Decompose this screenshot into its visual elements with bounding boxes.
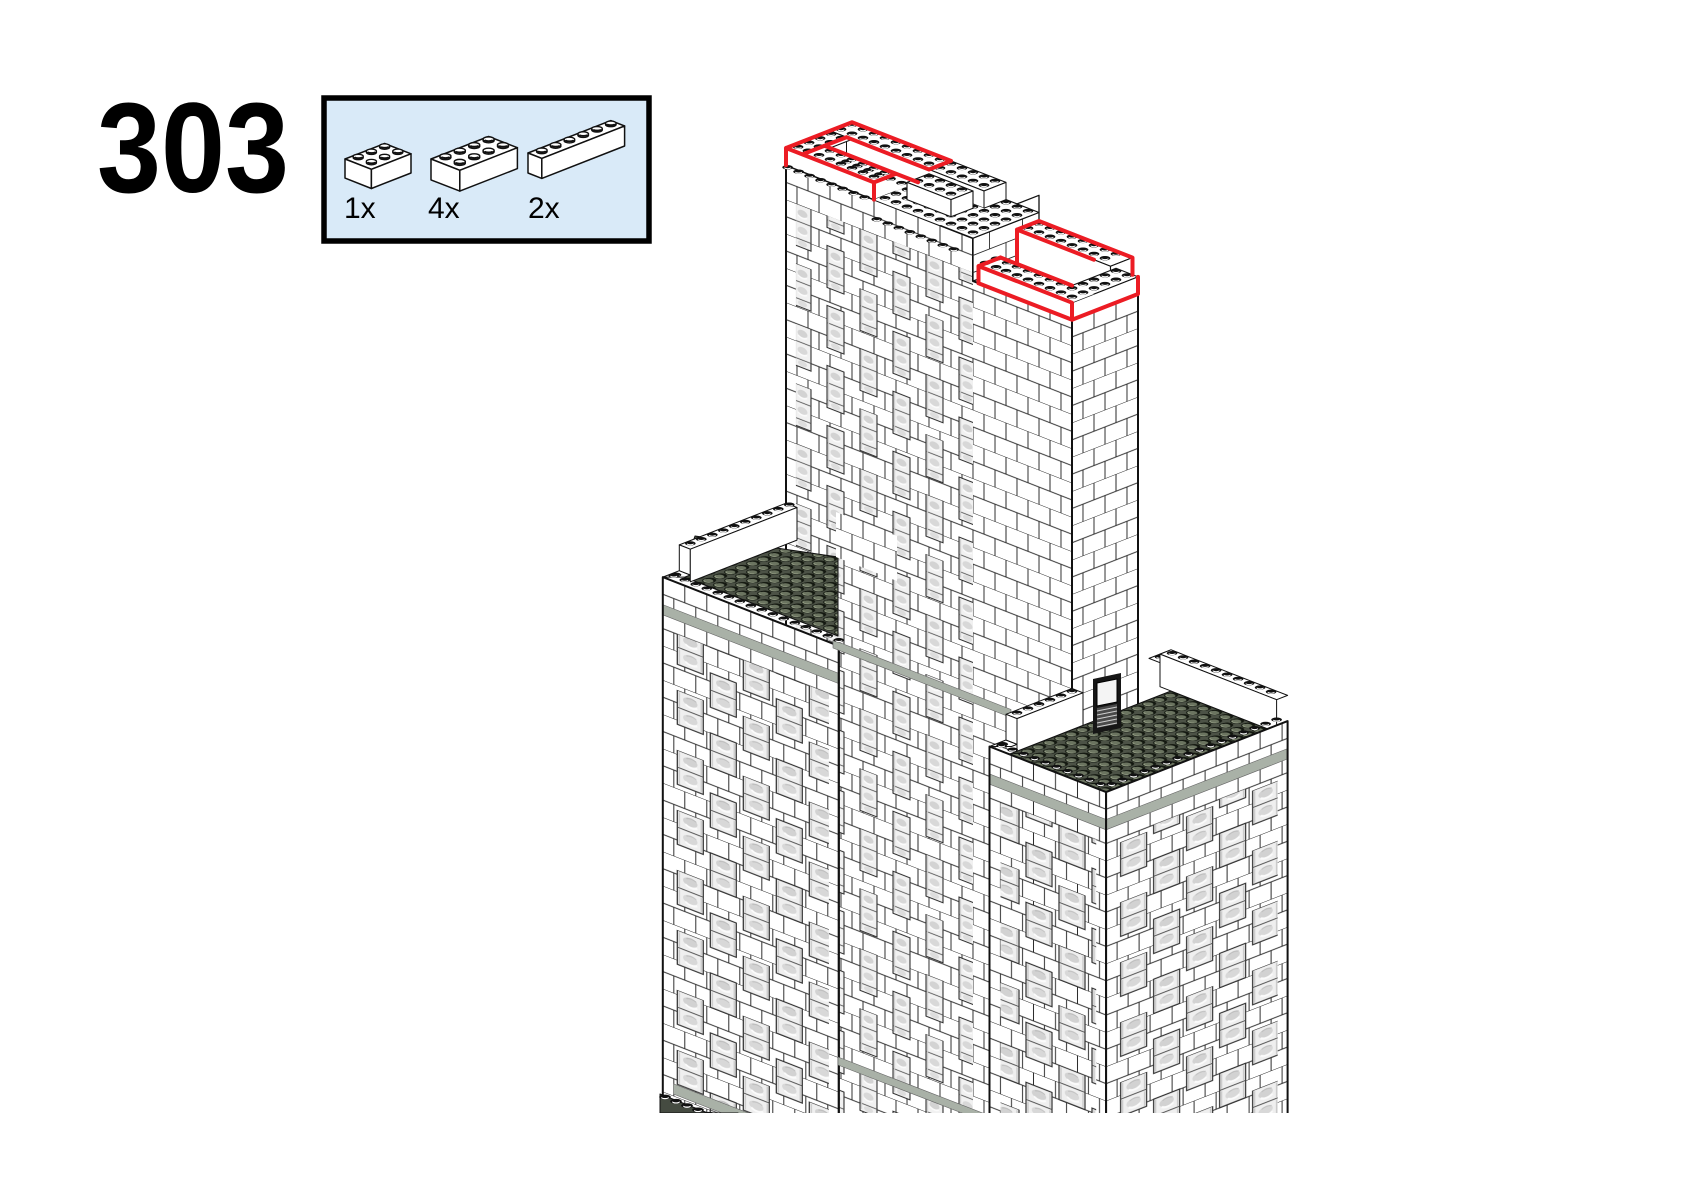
svg-text:2x: 2x — [528, 192, 560, 225]
svg-text:303: 303 — [97, 77, 289, 220]
svg-text:4x: 4x — [428, 192, 460, 225]
svg-text:1x: 1x — [344, 192, 376, 225]
